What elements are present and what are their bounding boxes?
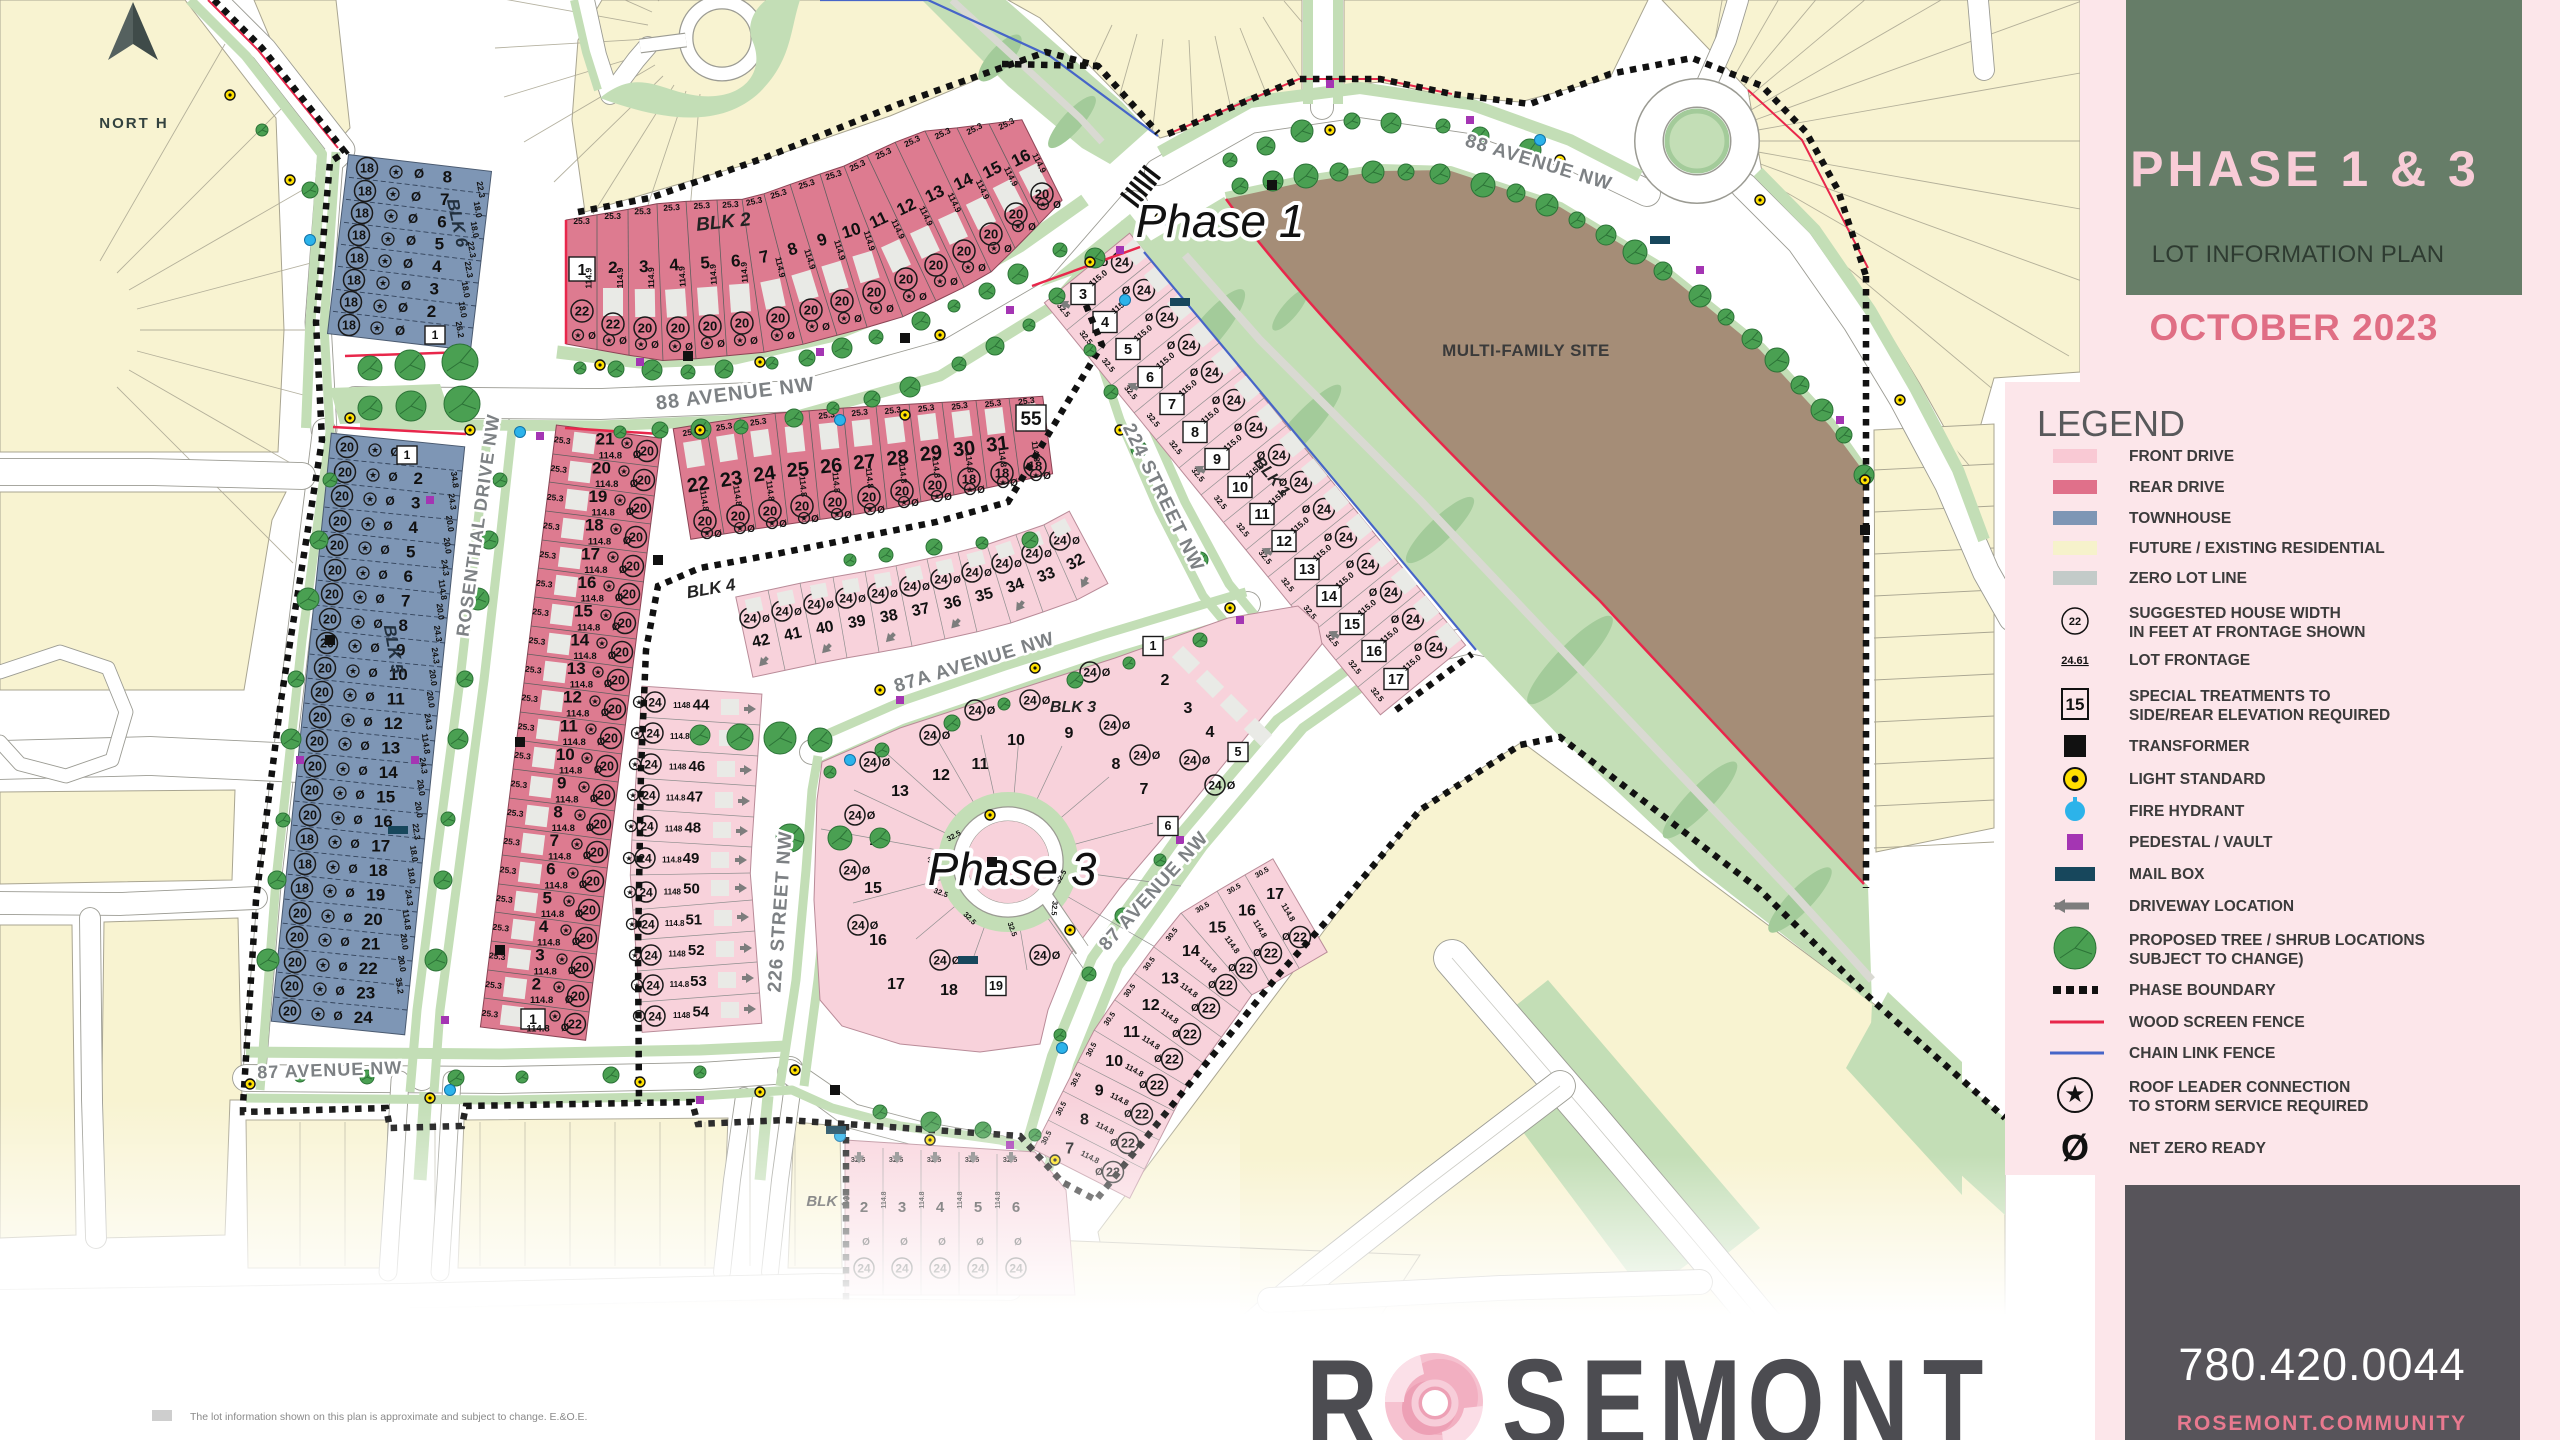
svg-text:★: ★ (900, 498, 907, 507)
svg-text:17: 17 (581, 544, 600, 563)
svg-text:24: 24 (807, 597, 821, 611)
svg-text:19: 19 (588, 487, 607, 506)
svg-text:FUTURE / EXISTING RESIDENTIAL: FUTURE / EXISTING RESIDENTIAL (2129, 540, 2385, 557)
svg-text:24: 24 (1317, 503, 1331, 517)
svg-text:★: ★ (316, 984, 324, 994)
svg-text:Ø: Ø (406, 233, 416, 248)
svg-text:24: 24 (848, 808, 862, 822)
svg-text:★: ★ (999, 478, 1006, 487)
svg-text:25.3: 25.3 (532, 606, 550, 618)
svg-text:Ø: Ø (370, 641, 379, 655)
svg-text:★: ★ (314, 1009, 322, 1019)
svg-text:17: 17 (371, 837, 390, 856)
svg-text:★: ★ (583, 754, 590, 763)
svg-text:★: ★ (389, 189, 397, 199)
svg-text:20: 20 (285, 980, 299, 994)
svg-text:20: 20 (608, 703, 622, 717)
svg-text:24: 24 (646, 726, 660, 740)
svg-text:25.3: 25.3 (884, 404, 902, 416)
svg-text:Ø: Ø (987, 705, 996, 717)
svg-text:20: 20 (615, 646, 629, 660)
svg-text:Ø: Ø (942, 730, 951, 742)
svg-text:10: 10 (1007, 732, 1025, 749)
svg-text:25.3: 25.3 (525, 664, 543, 676)
svg-text:Ø: Ø (626, 506, 635, 518)
svg-text:114.8: 114.8 (670, 732, 690, 741)
svg-text:Ø: Ø (615, 592, 624, 604)
svg-text:11: 11 (972, 756, 989, 773)
svg-text:BLK 3: BLK 3 (1050, 699, 1096, 716)
svg-text:3: 3 (1184, 700, 1193, 717)
svg-text:Ø: Ø (604, 678, 613, 690)
svg-text:18: 18 (585, 516, 604, 535)
svg-text:10: 10 (1105, 1053, 1123, 1070)
svg-text:★: ★ (551, 1012, 558, 1021)
svg-text:114.9: 114.9 (584, 268, 594, 289)
svg-text:★: ★ (344, 715, 352, 725)
svg-text:Ø: Ø (338, 960, 347, 974)
svg-text:Ø: Ø (747, 524, 755, 535)
svg-text:16: 16 (578, 573, 597, 592)
svg-text:Ø: Ø (811, 514, 819, 525)
svg-text:★: ★ (381, 256, 389, 266)
svg-text:15: 15 (574, 602, 593, 621)
svg-text:13: 13 (1161, 970, 1179, 987)
svg-text:NET ZERO READY: NET ZERO READY (2129, 1140, 2267, 1157)
svg-text:22: 22 (1264, 947, 1278, 961)
svg-text:Ø: Ø (922, 582, 930, 593)
svg-text:24: 24 (1406, 613, 1420, 627)
svg-text:Ø: Ø (886, 304, 894, 315)
svg-text:M: M (1659, 1333, 1742, 1440)
svg-text:24: 24 (648, 1009, 662, 1023)
svg-text:2: 2 (532, 974, 541, 993)
svg-text:★: ★ (555, 983, 562, 992)
svg-text:24: 24 (965, 565, 979, 579)
svg-text:Ø: Ø (594, 764, 603, 776)
svg-text:★: ★ (326, 886, 334, 896)
svg-text:20: 20 (364, 910, 383, 929)
svg-text:20: 20 (340, 441, 354, 455)
svg-text:24: 24 (1249, 421, 1263, 435)
svg-text:25.3: 25.3 (503, 836, 521, 848)
svg-text:13: 13 (567, 659, 586, 678)
svg-text:1: 1 (432, 328, 439, 342)
svg-text:Ø: Ø (877, 505, 885, 516)
svg-text:Ø: Ø (579, 879, 588, 891)
svg-text:SUGGESTED HOUSE WIDTH: SUGGESTED HOUSE WIDTH (2129, 605, 2341, 622)
svg-text:22: 22 (2069, 616, 2081, 628)
svg-text:25.3: 25.3 (984, 397, 1002, 409)
svg-text:Ø: Ø (762, 614, 770, 625)
svg-text:★: ★ (866, 505, 873, 514)
svg-text:114.9: 114.9 (708, 264, 719, 286)
svg-text:LEGEND: LEGEND (2037, 403, 2185, 444)
svg-text:3: 3 (1079, 287, 1087, 303)
svg-text:25.3: 25.3 (492, 922, 510, 934)
svg-text:24: 24 (1294, 476, 1308, 490)
svg-text:6: 6 (403, 567, 412, 586)
svg-text:5: 5 (542, 888, 551, 907)
svg-text:E: E (1581, 1333, 1647, 1440)
svg-text:24: 24 (1182, 339, 1196, 353)
svg-text:20: 20 (582, 904, 596, 918)
svg-text:★: ★ (605, 336, 612, 345)
svg-text:1: 1 (1150, 639, 1157, 653)
svg-text:24: 24 (743, 611, 757, 625)
svg-text:★: ★ (376, 301, 384, 311)
svg-text:25.3: 25.3 (917, 402, 935, 414)
svg-text:14: 14 (1321, 589, 1337, 605)
svg-text:25.3: 25.3 (573, 216, 590, 226)
svg-text:5: 5 (406, 543, 415, 562)
svg-text:★: ★ (627, 822, 634, 831)
svg-text:PEDESTAL / VAULT: PEDESTAL / VAULT (2129, 834, 2273, 851)
svg-text:114.8: 114.8 (670, 980, 690, 989)
svg-text:Ø: Ø (575, 908, 584, 920)
svg-text:24: 24 (644, 948, 658, 962)
svg-text:14: 14 (379, 763, 398, 782)
svg-text:20: 20 (835, 294, 849, 309)
svg-text:Ø: Ø (919, 292, 927, 303)
svg-text:114.9: 114.9 (615, 267, 625, 288)
svg-text:★: ★ (768, 519, 775, 528)
svg-text:22: 22 (1183, 1028, 1197, 1042)
svg-text:★: ★ (387, 211, 395, 221)
svg-text:20: 20 (899, 272, 913, 287)
svg-text:1148: 1148 (668, 950, 686, 959)
svg-text:N: N (1837, 1333, 1909, 1440)
svg-text:4: 4 (1101, 315, 1109, 331)
svg-text:114.8: 114.8 (530, 995, 553, 1006)
svg-text:Ø: Ø (601, 707, 610, 719)
svg-text:12: 12 (1142, 997, 1160, 1014)
svg-text:18: 18 (360, 162, 374, 176)
svg-text:★: ★ (351, 641, 359, 651)
svg-text:12: 12 (384, 714, 403, 733)
svg-text:15: 15 (1209, 920, 1227, 937)
svg-text:11: 11 (1254, 507, 1269, 523)
svg-text:25.3: 25.3 (514, 750, 532, 762)
svg-text:20: 20 (735, 316, 749, 331)
svg-text:Ø: Ø (1043, 471, 1051, 482)
svg-text:25.3: 25.3 (604, 211, 621, 221)
svg-text:51: 51 (685, 911, 702, 928)
svg-text:★: ★ (1032, 471, 1039, 480)
svg-text:TO STORM SERVICE REQUIRED: TO STORM SERVICE REQUIRED (2129, 1098, 2368, 1115)
svg-text:114.9: 114.9 (676, 266, 687, 288)
svg-text:★: ★ (620, 467, 627, 476)
svg-text:18: 18 (352, 229, 366, 243)
svg-text:17: 17 (1266, 886, 1284, 903)
svg-text:24: 24 (1384, 586, 1398, 600)
svg-text:★: ★ (605, 582, 612, 591)
svg-text:24: 24 (1133, 748, 1147, 762)
svg-text:TOWNHOUSE: TOWNHOUSE (2129, 510, 2231, 527)
svg-text:24: 24 (1205, 366, 1219, 380)
svg-text:1148: 1148 (673, 1011, 691, 1020)
svg-text:24: 24 (863, 755, 877, 769)
svg-text:Ø: Ø (568, 965, 577, 977)
svg-text:25.3: 25.3 (481, 1008, 499, 1020)
svg-text:Ø: Ø (1282, 932, 1290, 943)
svg-text:★: ★ (736, 524, 743, 533)
svg-text:Ø: Ø (385, 494, 394, 508)
svg-text:20: 20 (862, 490, 876, 505)
svg-text:Ø: Ø (1414, 642, 1423, 654)
svg-text:MULTI-FAMILY SITE: MULTI-FAMILY SITE (1442, 341, 1610, 360)
svg-text:Ø: Ø (794, 607, 802, 618)
svg-text:1148: 1148 (673, 701, 691, 710)
svg-text:114.8: 114.8 (666, 793, 686, 802)
svg-text:★: ★ (966, 485, 973, 494)
svg-text:★: ★ (1014, 222, 1021, 231)
svg-text:★: ★ (703, 529, 710, 538)
svg-text:4: 4 (1206, 724, 1215, 741)
svg-text:Ø: Ø (335, 984, 344, 998)
svg-text:14: 14 (1182, 943, 1200, 960)
svg-text:24: 24 (1339, 531, 1353, 545)
svg-text:41: 41 (782, 624, 803, 644)
svg-text:24: 24 (968, 703, 982, 717)
svg-text:20: 20 (290, 931, 304, 945)
svg-text:Ø: Ø (1253, 948, 1261, 959)
svg-text:25.3: 25.3 (528, 635, 546, 647)
svg-text:20: 20 (597, 789, 611, 803)
svg-text:Ø: Ø (1072, 536, 1080, 547)
svg-text:22: 22 (359, 959, 378, 978)
svg-text:Ø: Ø (365, 690, 374, 704)
svg-text:20: 20 (315, 686, 329, 700)
svg-text:Ø: Ø (867, 810, 876, 822)
svg-text:8: 8 (1191, 425, 1199, 441)
svg-text:Ø: Ø (854, 314, 862, 325)
svg-text:18: 18 (347, 274, 361, 288)
svg-text:★: ★ (558, 955, 565, 964)
svg-text:Ø: Ø (345, 886, 354, 900)
svg-text:24: 24 (1137, 284, 1151, 298)
svg-text:★: ★ (573, 840, 580, 849)
svg-text:2: 2 (413, 469, 422, 488)
svg-text:2: 2 (427, 302, 436, 321)
svg-text:7: 7 (1168, 397, 1176, 413)
svg-text:24: 24 (1361, 558, 1375, 572)
svg-text:Ø: Ø (1234, 422, 1243, 434)
svg-text:20: 20 (592, 458, 611, 477)
svg-text:★: ★ (339, 764, 347, 774)
svg-text:Ø: Ø (414, 166, 424, 181)
svg-text:18: 18 (350, 252, 364, 266)
svg-text:24: 24 (641, 917, 655, 931)
svg-text:18: 18 (355, 207, 369, 221)
svg-text:★: ★ (349, 666, 357, 676)
svg-text:Ø: Ø (565, 994, 574, 1006)
svg-text:Ø: Ø (1202, 755, 1211, 767)
svg-text:Ø: Ø (395, 323, 405, 338)
svg-text:20: 20 (325, 588, 339, 602)
svg-text:53: 53 (690, 973, 707, 990)
svg-text:Ø: Ø (411, 189, 421, 204)
svg-text:24: 24 (1115, 256, 1129, 270)
svg-text:20: 20 (303, 809, 317, 823)
svg-text:23: 23 (356, 984, 375, 1003)
svg-text:24: 24 (1227, 394, 1241, 408)
svg-text:20: 20 (333, 515, 347, 529)
svg-text:24: 24 (1025, 546, 1039, 560)
svg-text:25.3: 25.3 (539, 549, 557, 561)
svg-text:20: 20 (804, 303, 818, 318)
svg-text:25.3: 25.3 (521, 692, 539, 704)
svg-text:20: 20 (604, 732, 618, 746)
svg-text:ROOF LEADER CONNECTION: ROOF LEADER CONNECTION (2129, 1079, 2350, 1096)
svg-text:WOOD SCREEN FENCE: WOOD SCREEN FENCE (2129, 1014, 2305, 1031)
svg-text:Ø: Ø (1154, 1054, 1162, 1065)
svg-text:★: ★ (341, 739, 349, 749)
svg-text:★: ★ (800, 514, 807, 523)
svg-text:★: ★ (369, 470, 377, 480)
svg-text:42: 42 (751, 631, 772, 651)
svg-text:20: 20 (310, 735, 324, 749)
svg-text:20: 20 (929, 258, 943, 273)
svg-text:52: 52 (688, 942, 705, 959)
svg-text:47: 47 (686, 789, 703, 806)
svg-text:22: 22 (606, 317, 620, 332)
svg-text:114.9: 114.9 (646, 267, 656, 288)
svg-text:CHAIN LINK FENCE: CHAIN LINK FENCE (2129, 1045, 2275, 1062)
svg-text:Ø: Ø (619, 336, 627, 347)
svg-text:Ø: Ø (978, 263, 986, 274)
svg-text:24: 24 (644, 757, 658, 771)
svg-text:Ø: Ø (343, 911, 352, 925)
svg-text:114.9: 114.9 (739, 261, 750, 283)
svg-text:★: ★ (361, 543, 369, 553)
svg-text:20: 20 (795, 499, 809, 514)
svg-text:LOT INFORMATION PLAN: LOT INFORMATION PLAN (2152, 241, 2444, 268)
svg-text:★: ★ (1039, 200, 1046, 209)
svg-text:22: 22 (1239, 962, 1253, 976)
svg-text:LIGHT STANDARD: LIGHT STANDARD (2129, 771, 2266, 788)
svg-text:25.3: 25.3 (506, 807, 524, 819)
svg-text:Phase 1: Phase 1 (1136, 195, 1305, 247)
svg-text:1148: 1148 (665, 824, 683, 833)
svg-text:20: 20 (283, 1005, 297, 1019)
svg-text:11: 11 (387, 690, 405, 709)
svg-text:★: ★ (587, 725, 594, 734)
svg-text:Ø: Ø (1346, 559, 1355, 571)
svg-text:5: 5 (435, 235, 444, 254)
svg-text:Ø: Ø (1102, 667, 1111, 679)
svg-text:114.8: 114.8 (665, 919, 685, 928)
svg-text:★: ★ (331, 837, 339, 847)
svg-text:Ø: Ø (1053, 200, 1061, 211)
svg-text:NORT H: NORT H (99, 115, 169, 132)
svg-text:24: 24 (1272, 449, 1286, 463)
svg-text:25.3: 25.3 (499, 864, 517, 876)
svg-text:Ø: Ø (1190, 367, 1199, 379)
svg-text:20: 20 (698, 514, 712, 529)
svg-text:Ø: Ø (340, 935, 349, 949)
svg-text:9: 9 (1065, 725, 1074, 742)
svg-text:24: 24 (1023, 693, 1037, 707)
svg-text:7: 7 (550, 831, 559, 850)
svg-text:25.3: 25.3 (693, 200, 710, 211)
svg-text:Ø: Ø (787, 331, 795, 342)
svg-text:Ø: Ø (561, 1022, 570, 1034)
svg-text:25.3: 25.3 (851, 407, 869, 419)
svg-text:Ø: Ø (858, 594, 866, 605)
svg-text:20: 20 (637, 474, 651, 488)
svg-text:44: 44 (693, 697, 710, 714)
svg-text:Ø: Ø (630, 478, 639, 490)
svg-text:46: 46 (689, 758, 706, 775)
svg-text:18: 18 (295, 882, 309, 896)
svg-text:★: ★ (364, 519, 372, 529)
svg-text:PHASE 1 & 3: PHASE 1 & 3 (2130, 141, 2480, 197)
svg-text:Ø: Ø (586, 822, 595, 834)
svg-text:24: 24 (775, 604, 789, 618)
svg-text:★: ★ (598, 639, 605, 648)
svg-text:Ø: Ø (380, 543, 389, 557)
svg-text:114.8: 114.8 (662, 856, 682, 865)
svg-text:24: 24 (1103, 718, 1117, 732)
svg-text:★: ★ (990, 244, 997, 253)
svg-text:Ø: Ø (1172, 1029, 1180, 1040)
svg-text:Ø: Ø (590, 793, 599, 805)
svg-text:25.3: 25.3 (722, 199, 739, 210)
svg-text:20: 20 (1009, 207, 1023, 222)
svg-text:24: 24 (933, 953, 947, 967)
svg-text:8: 8 (1112, 756, 1121, 773)
svg-text:★: ★ (329, 862, 337, 872)
svg-text:Ø: Ø (1167, 340, 1176, 352)
svg-text:20: 20 (763, 504, 777, 519)
svg-text:20: 20 (771, 311, 785, 326)
svg-text:★: ★ (371, 445, 379, 455)
svg-text:★: ★ (346, 690, 354, 700)
svg-text:★: ★ (354, 617, 362, 627)
svg-text:24: 24 (646, 978, 660, 992)
svg-text:Ø: Ø (1369, 587, 1378, 599)
svg-text:The lot information shown on t: The lot information shown on this plan i… (190, 1411, 587, 1423)
svg-text:39: 39 (847, 612, 868, 632)
svg-text:Ø: Ø (383, 519, 392, 533)
svg-text:2: 2 (1161, 672, 1170, 689)
svg-text:7: 7 (401, 592, 410, 611)
svg-text:Ø: Ø (890, 589, 898, 600)
svg-text:★: ★ (833, 510, 840, 519)
svg-text:★: ★ (591, 697, 598, 706)
svg-text:Ø: Ø (608, 650, 617, 662)
svg-text:3: 3 (535, 946, 544, 965)
svg-text:10: 10 (1232, 480, 1248, 496)
svg-text:Ø: Ø (398, 300, 408, 315)
svg-text:Ø: Ø (1044, 549, 1052, 560)
svg-text:24: 24 (851, 918, 865, 932)
svg-text:Ø: Ø (1152, 750, 1161, 762)
svg-text:24: 24 (995, 556, 1009, 570)
svg-text:25.3: 25.3 (510, 778, 528, 790)
svg-text:Ø: Ø (572, 936, 581, 948)
svg-text:★: ★ (628, 920, 635, 929)
svg-text:20: 20 (633, 502, 647, 516)
svg-text:★: ★ (964, 263, 971, 272)
svg-text:Ø: Ø (953, 575, 961, 586)
svg-text:Ø: Ø (1212, 395, 1221, 407)
svg-text:13: 13 (381, 739, 400, 758)
svg-text:PROPOSED TREE / SHRUB LOCATION: PROPOSED TREE / SHRUB LOCATIONS (2129, 932, 2425, 949)
svg-text:Ø: Ø (651, 340, 659, 351)
svg-text:6: 6 (1146, 370, 1154, 386)
